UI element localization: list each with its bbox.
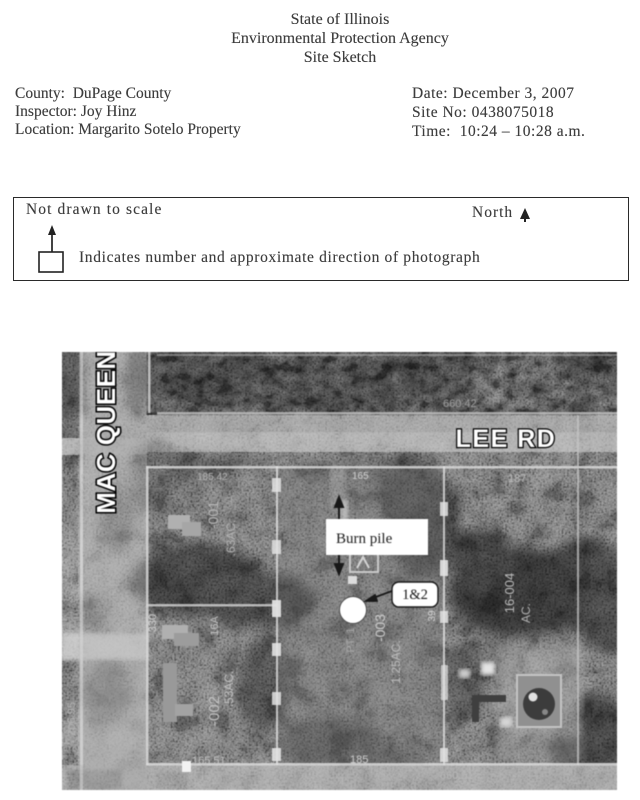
svg-text:330: 330 bbox=[147, 614, 159, 632]
svg-text:185: 185 bbox=[350, 754, 368, 766]
svg-text:1.25AC.: 1.25AC. bbox=[389, 640, 403, 683]
svg-text:39: 39 bbox=[427, 610, 438, 622]
svg-text:-002: -002 bbox=[206, 696, 223, 726]
svg-text:MAC QUEEN: MAC QUEEN bbox=[91, 352, 121, 514]
svg-text:LEE RD: LEE RD bbox=[456, 425, 557, 453]
svg-text:.53AC.: .53AC. bbox=[222, 671, 236, 708]
svg-text:1&2: 1&2 bbox=[402, 587, 428, 603]
svg-text:185.42: 185.42 bbox=[197, 472, 228, 483]
svg-text:Burn pile: Burn pile bbox=[336, 531, 393, 547]
svg-text:16A: 16A bbox=[209, 616, 221, 636]
svg-text:PT. 1: PT. 1 bbox=[345, 627, 357, 652]
svg-text:-001: -001 bbox=[205, 501, 221, 529]
svg-text:AC.: AC. bbox=[519, 603, 533, 623]
svg-text:165.51: 165.51 bbox=[192, 755, 226, 767]
svg-text:187: 187 bbox=[508, 473, 526, 485]
svg-text:.63AC.: .63AC. bbox=[224, 520, 238, 557]
svg-text:206.95: 206.95 bbox=[66, 702, 78, 736]
svg-text:16-004: 16-004 bbox=[502, 573, 517, 613]
svg-text:165: 165 bbox=[352, 471, 369, 482]
svg-text:-003: -003 bbox=[372, 614, 388, 642]
svg-text:660.42: 660.42 bbox=[443, 398, 477, 410]
svg-text:660.51: 660.51 bbox=[440, 770, 474, 782]
